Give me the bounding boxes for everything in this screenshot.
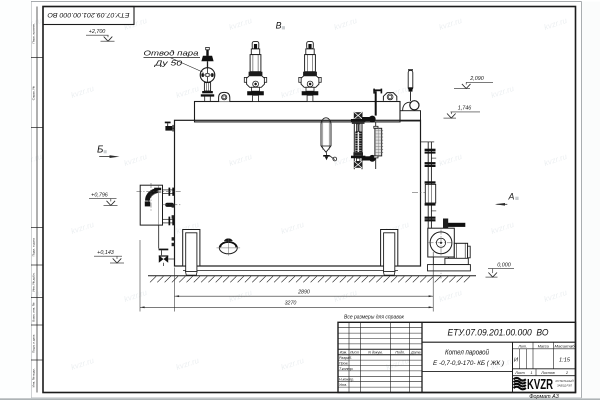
svg-text:2,090: 2,090	[469, 76, 484, 82]
svg-text:+0,796: +0,796	[91, 192, 108, 198]
svg-text:Утв.: Утв.	[339, 383, 347, 387]
svg-text:KVZR: KVZR	[527, 377, 553, 393]
svg-text:ЗАВОД РЭП: ЗАВОД РЭП	[557, 384, 573, 388]
svg-text:Лит.: Лит.	[517, 344, 527, 348]
svg-text:0,000: 0,000	[497, 262, 511, 268]
svg-text:2: 2	[565, 371, 568, 375]
svg-text:Т.контр.: Т.контр.	[339, 367, 354, 371]
svg-text:Справ. №: Справ. №	[32, 86, 36, 101]
svg-text:Лист: Лист	[349, 351, 359, 355]
svg-text:3270: 3270	[285, 301, 297, 307]
svg-text:А: А	[507, 191, 514, 201]
svg-text:N докум.: N докум.	[368, 351, 383, 355]
svg-text:В: В	[276, 21, 282, 31]
svg-text:Перв. примен.: Перв. примен.	[32, 23, 36, 44]
svg-text:Н.контр.: Н.контр.	[339, 378, 354, 382]
svg-text:1,746: 1,746	[458, 106, 472, 112]
svg-text:Масса: Масса	[538, 344, 549, 348]
svg-text:Формат А3: Формат А3	[529, 394, 559, 400]
svg-text:Подп.: Подп.	[395, 351, 405, 355]
svg-text:Отвод пара: Отвод пара	[144, 48, 199, 57]
svg-text:Котел паровой: Котел паровой	[445, 348, 489, 356]
svg-text:Изм.: Изм.	[340, 351, 348, 355]
svg-text:+0,143: +0,143	[97, 250, 114, 256]
svg-text:Ду 50: Ду 50	[154, 59, 184, 68]
svg-text:+2,700: +2,700	[89, 29, 106, 35]
svg-text:Дата: Дата	[410, 351, 420, 355]
svg-text:Подп. и дата: Подп. и дата	[32, 334, 36, 353]
svg-text:Листов: Листов	[540, 371, 555, 375]
svg-text:Взам. инв. №: Взам. инв. №	[32, 302, 36, 322]
svg-text:КОТЕЛЬНЫЙ: КОТЕЛЬНЫЙ	[556, 379, 575, 383]
svg-text:Все размеры для справок: Все размеры для справок	[344, 315, 405, 321]
svg-text:Пров.: Пров.	[339, 361, 348, 365]
svg-text:1:15: 1:15	[559, 358, 571, 364]
svg-text:Масштаб: Масштаб	[555, 344, 576, 348]
svg-text:Е -0,7-0,9-170- КБ ( ЖК ): Е -0,7-0,9-170- КБ ( ЖК )	[433, 360, 504, 367]
svg-text:1: 1	[530, 371, 532, 375]
svg-text:Инв. № подл.: Инв. № подл.	[32, 368, 36, 387]
svg-text:Разраб.: Разраб.	[339, 356, 352, 360]
svg-text:Б: Б	[97, 145, 104, 156]
svg-text:ЕТУ.07.09.201.00.000 ВО: ЕТУ.07.09.201.00.000 ВО	[47, 11, 130, 18]
svg-text:2890: 2890	[297, 290, 310, 296]
svg-text:Подп. и дата: Подп. и дата	[32, 238, 36, 257]
svg-text:ЕТУ.07.09.201.00.000 ВО: ЕТУ.07.09.201.00.000 ВО	[448, 328, 549, 338]
svg-text:Инв. № дубл.: Инв. № дубл.	[32, 272, 36, 291]
svg-text:Лист: Лист	[514, 371, 525, 375]
